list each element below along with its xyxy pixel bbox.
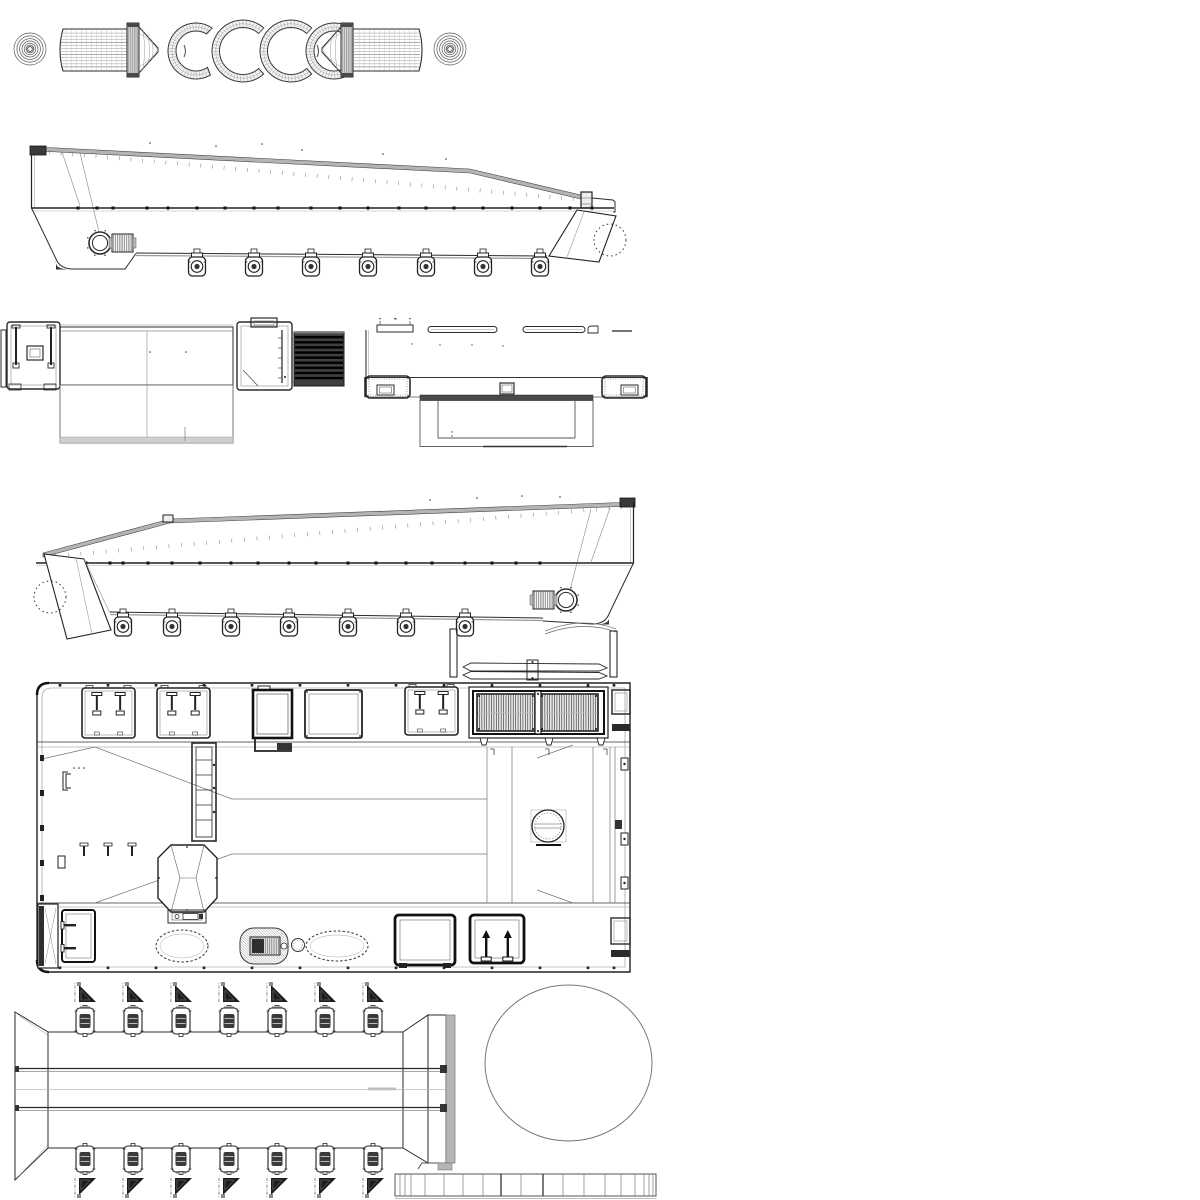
side-door-hatch <box>61 910 95 962</box>
ramp-roller-fitting <box>123 1144 144 1175</box>
ramp-roller-fitting <box>75 1006 96 1037</box>
roller-fitting <box>303 249 320 276</box>
ramp-roller-fitting <box>171 1144 192 1175</box>
gusset-bracket <box>171 982 192 1008</box>
large-circle-part <box>485 985 652 1141</box>
ramp-roller-fitting <box>171 1006 192 1037</box>
engine-grilles <box>469 687 608 745</box>
drum-mesh <box>61 30 127 70</box>
drum-mesh <box>354 30 420 70</box>
ramp-roller-fitting <box>75 1144 96 1175</box>
disc-part-view <box>485 985 652 1141</box>
arc-sliver <box>184 45 186 57</box>
ramp-stiffener-lines <box>15 1065 447 1112</box>
dark-panel-hatch <box>395 915 455 968</box>
gusset-brackets-top <box>75 982 384 1008</box>
end-disc-part <box>14 33 46 65</box>
gusset-bracket <box>123 1172 144 1198</box>
fender-arc-segment <box>168 23 212 79</box>
ramp-hinge-block <box>620 498 635 507</box>
segmented-band <box>395 1174 656 1199</box>
end-strip-panel <box>38 904 58 968</box>
bow-top-fitting <box>581 192 592 208</box>
grille-panel <box>540 694 598 731</box>
side-pod <box>237 322 292 390</box>
end-disc-parts <box>14 33 466 65</box>
hull-face-upper <box>60 327 233 385</box>
dotted-oval-hatch <box>156 930 208 962</box>
ramp-roller-fitting <box>315 1144 336 1175</box>
gusset-bracket <box>267 982 288 1008</box>
roller-fitting <box>246 249 263 276</box>
gusset-bracket <box>171 1172 192 1198</box>
roller-fitting <box>418 249 435 276</box>
parts-strip-view <box>14 20 466 82</box>
ramp-roller-fitting <box>219 1144 240 1175</box>
ramp-roller-fitting <box>267 1144 288 1175</box>
arc-sliver <box>317 45 319 57</box>
gusset-brackets-bottom <box>75 1172 384 1198</box>
roller-fitting <box>475 249 492 276</box>
roller-drum-left <box>322 23 422 77</box>
ramp-roller-fitting <box>123 1006 144 1037</box>
pin-hatch <box>405 685 458 736</box>
side-pod <box>7 322 60 389</box>
louver-block <box>294 332 344 386</box>
stern-pod-right <box>602 376 646 398</box>
deck-plan-view <box>37 683 630 972</box>
ramp-roller-fitting <box>315 1006 336 1037</box>
blueprint-canvas: Landing craft hull - multi-view wirefram… <box>0 0 1200 1200</box>
roller-fitting <box>164 609 181 636</box>
stern-pod-left <box>366 376 410 398</box>
roller-fitting <box>457 609 474 636</box>
fender-arc-segment <box>260 20 312 82</box>
ramp-hinge-block <box>30 146 46 155</box>
dotted-oval-hatch <box>306 931 368 961</box>
gusset-bracket <box>75 1172 96 1198</box>
deck-specks <box>429 495 561 501</box>
end-view-stern <box>365 318 647 447</box>
deck-fitting <box>163 515 173 522</box>
roller-fitting <box>115 609 132 636</box>
roller-fitting <box>340 609 357 636</box>
gusset-bracket <box>267 1172 288 1198</box>
small-round-fitting <box>292 939 305 952</box>
ramp-flat-view <box>15 982 455 1198</box>
pin-hatch <box>157 686 210 739</box>
roller-fitting <box>281 609 298 636</box>
ramp-roller-fitting <box>363 1006 384 1037</box>
roller-drum-right <box>60 23 158 77</box>
gusset-bracket <box>123 982 144 1008</box>
stern-skirt-curve <box>545 623 616 634</box>
deck-edge-wedge <box>38 147 585 200</box>
ramp-roller-fitting <box>219 1006 240 1037</box>
deck-panel <box>305 690 362 738</box>
side-view-port <box>34 495 635 680</box>
stanchion-post <box>450 629 457 677</box>
segment-strip-view <box>395 1163 656 1199</box>
deck-edge-wedge <box>43 502 634 557</box>
ramp-roller-fitting <box>267 1006 288 1037</box>
strip-leader-bracket <box>418 1163 452 1170</box>
fender-arc-parts <box>168 20 350 82</box>
gusset-bracket <box>315 982 336 1008</box>
gusset-bracket <box>363 1172 384 1198</box>
roller-fitting <box>398 609 415 636</box>
roller-fitting <box>532 249 549 276</box>
blueprint-page: Landing craft hull - multi-view wirefram… <box>0 0 1200 1200</box>
bottom-roller-fittings <box>189 249 549 276</box>
end-view-bow <box>1 318 344 443</box>
bottom-roller-fittings <box>115 609 474 636</box>
boathook-bars <box>463 660 607 680</box>
end-disc-part <box>434 33 466 65</box>
ramp-roller-fitting <box>363 1144 384 1175</box>
fender-arc-segment <box>212 20 264 82</box>
side-view-starboard <box>30 142 626 276</box>
bow-ramp-plate <box>549 210 616 262</box>
gusset-bracket <box>75 982 96 1008</box>
gusset-bracket <box>315 1172 336 1198</box>
roller-fitting <box>360 249 377 276</box>
stanchion-post <box>610 631 617 677</box>
hull-face-lower <box>60 385 233 443</box>
roller-fitting <box>189 249 206 276</box>
transom-sill <box>420 395 593 401</box>
pod-window <box>27 346 43 360</box>
roller-fitting <box>223 609 240 636</box>
stand-legs <box>420 401 593 447</box>
grille-panel <box>477 694 535 731</box>
dark-panel-pin-hatch <box>470 915 524 963</box>
pin-hatch <box>82 686 135 739</box>
gusset-bracket <box>363 982 384 1008</box>
top-bracket <box>377 325 413 332</box>
gusset-bracket <box>219 982 240 1008</box>
gusset-bracket <box>219 1172 240 1198</box>
bow-ramp-plate <box>44 554 111 639</box>
